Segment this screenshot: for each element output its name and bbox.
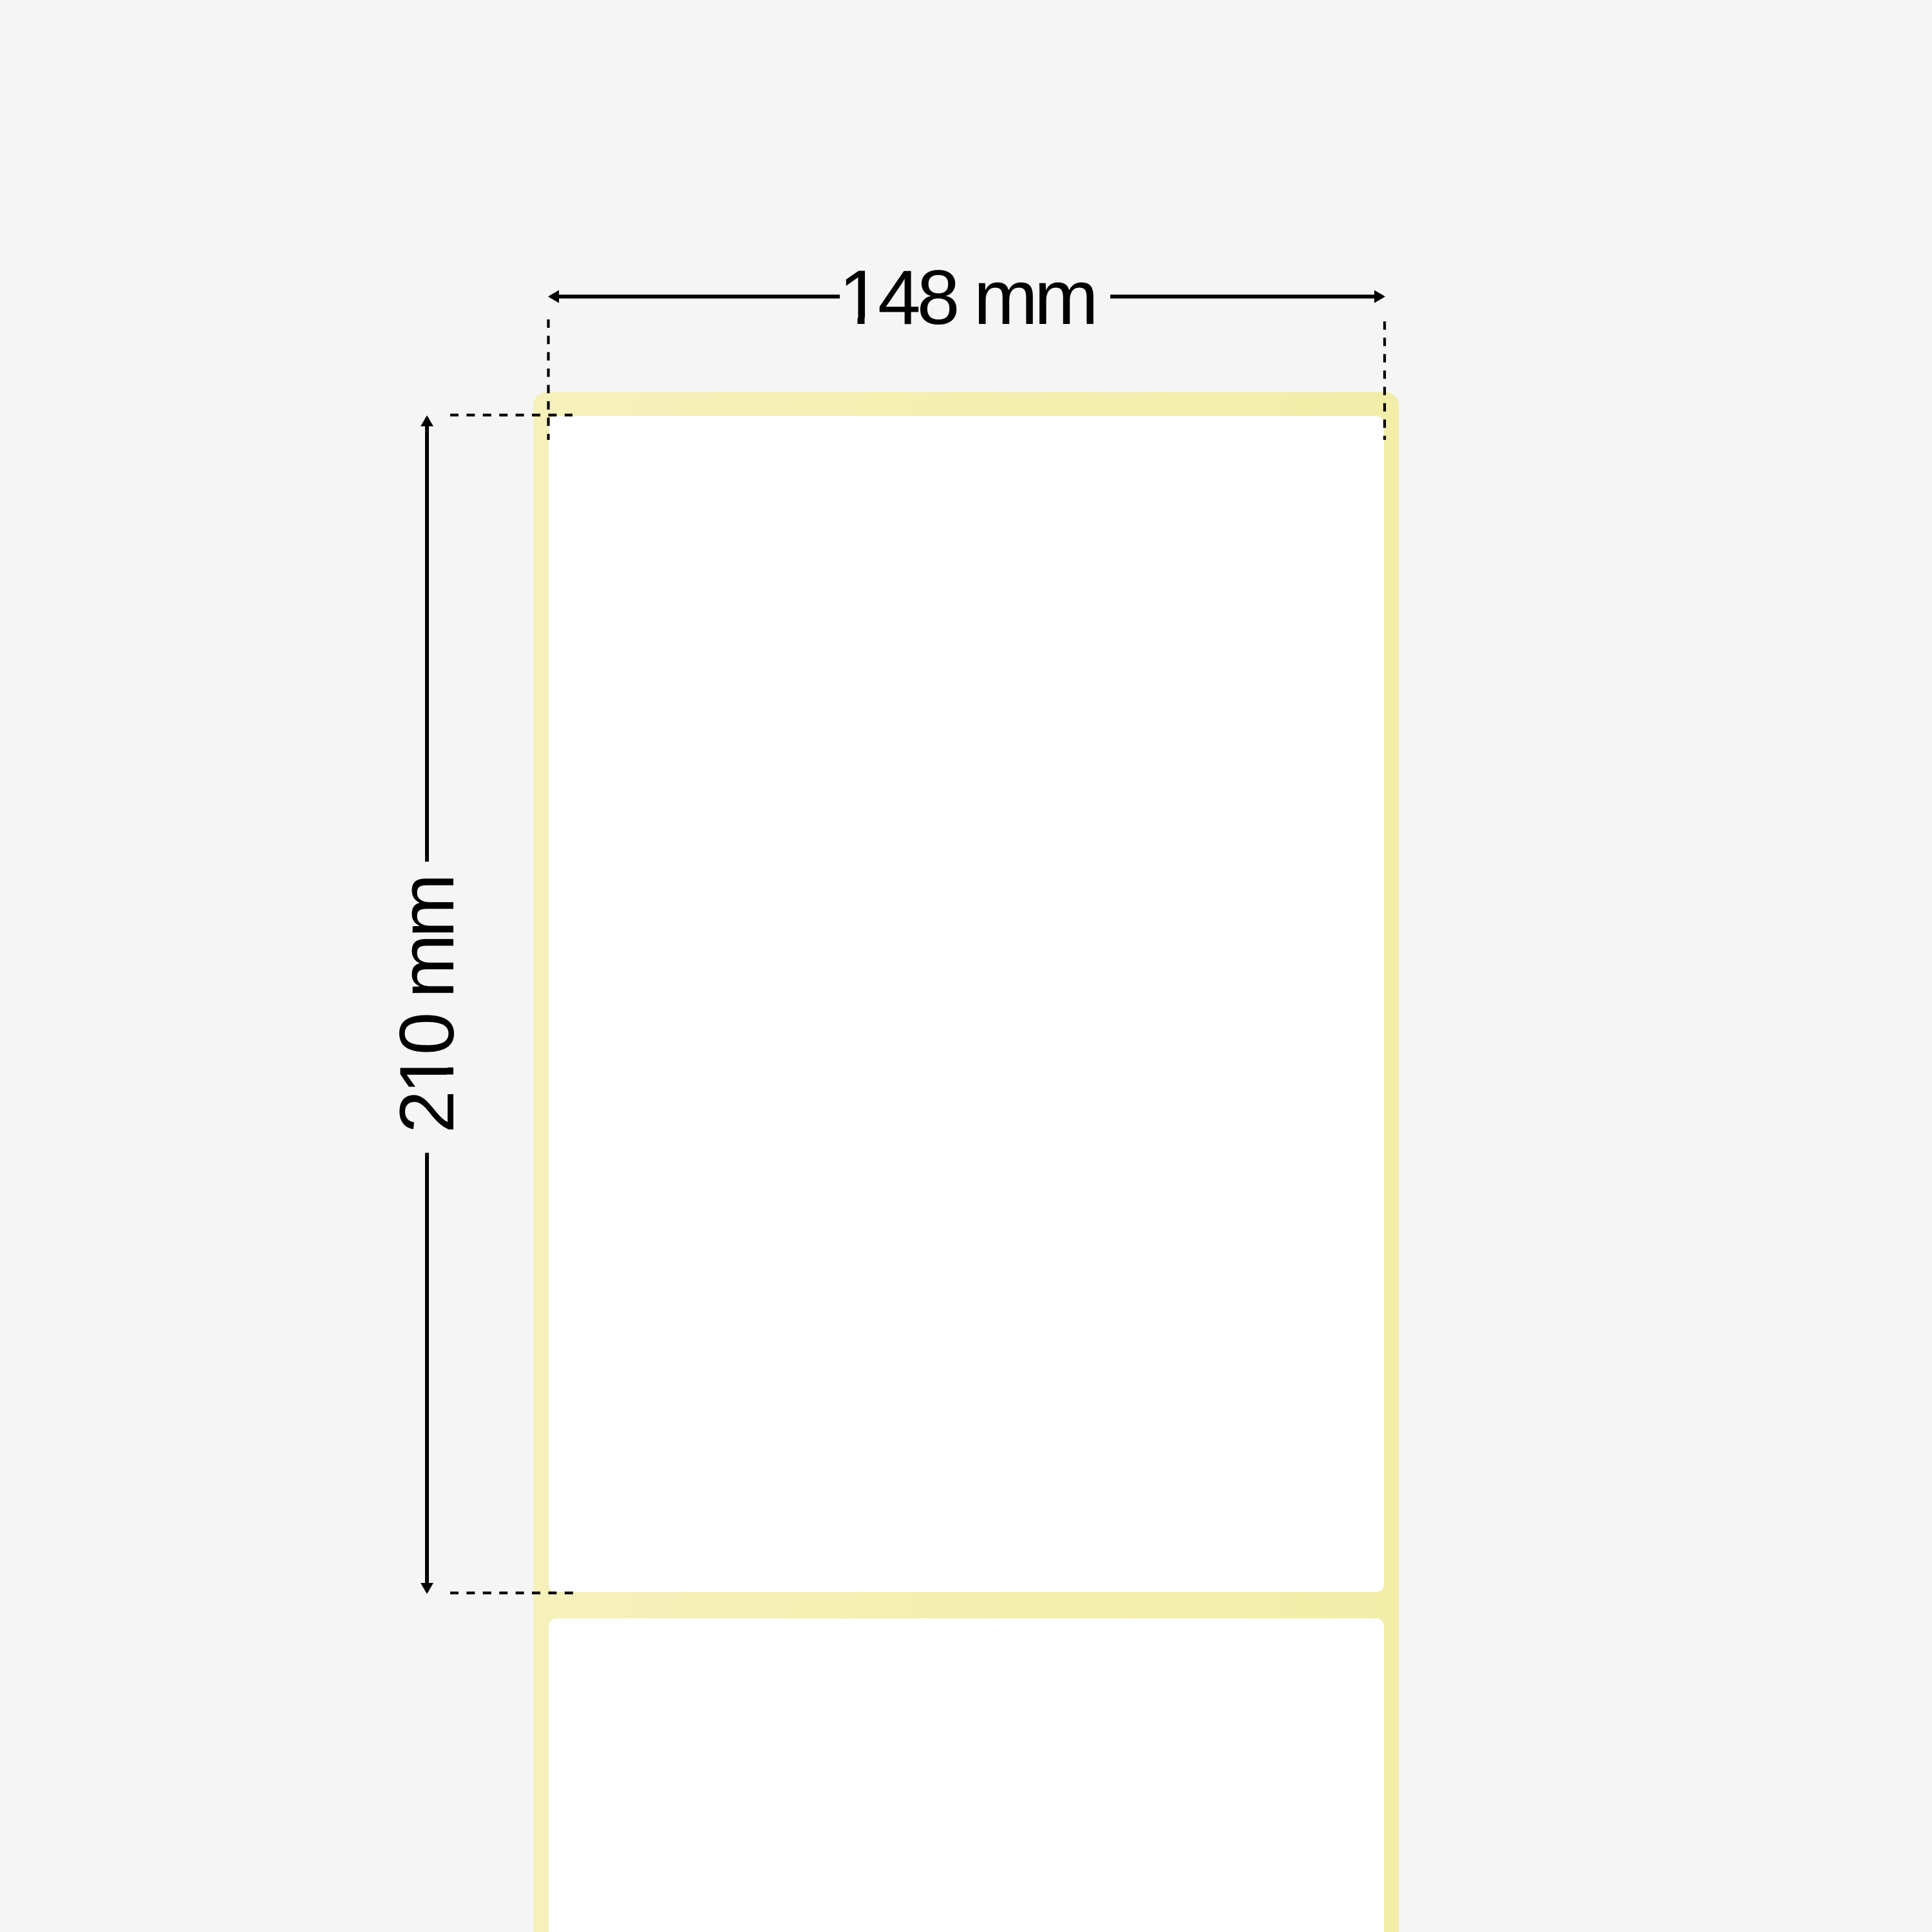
- svg-text:210 mm: 210 mm: [384, 877, 470, 1133]
- svg-text:148 mm: 148 mm: [838, 254, 1094, 341]
